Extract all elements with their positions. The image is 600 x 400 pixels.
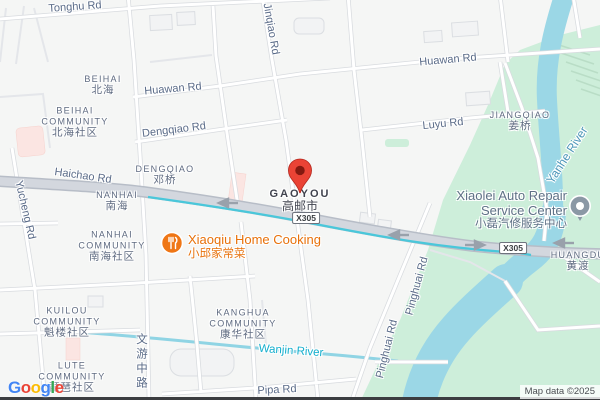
place-pin-icon[interactable]	[566, 194, 594, 224]
google-logo-letter: o	[21, 378, 31, 397]
google-logo[interactable]: Google	[8, 379, 64, 397]
google-logo-letter: o	[31, 378, 41, 397]
google-logo-letter: g	[41, 378, 51, 397]
google-logo-letter: e	[55, 378, 64, 397]
map-canvas[interactable]: Tonghu Rd Jinqiao Rd Huawan Rd Huawan Rd…	[0, 0, 600, 400]
route-badge-x305-east: X305	[499, 242, 527, 254]
route-badge-x305-west: X305	[292, 212, 320, 224]
map-base-art	[0, 0, 600, 400]
destination-pin-icon[interactable]	[287, 159, 313, 194]
map-data-attribution: Map data ©2025	[520, 385, 600, 399]
google-logo-letter: G	[8, 378, 21, 397]
restaurant-icon[interactable]	[160, 231, 184, 255]
